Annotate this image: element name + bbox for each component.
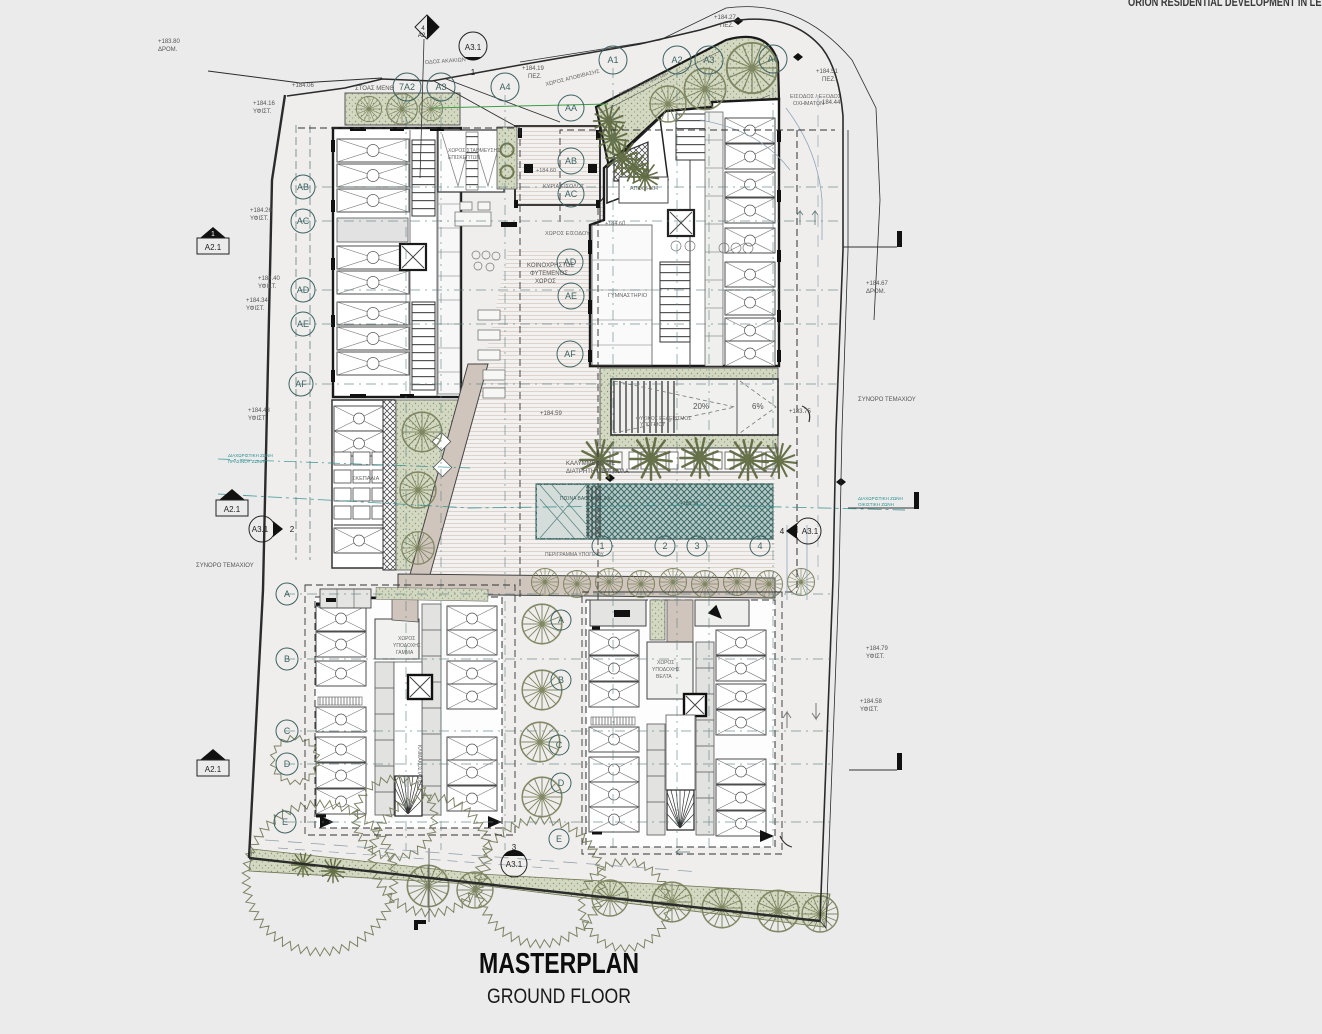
svg-text:ΒΕΛΤΑ: ΒΕΛΤΑ xyxy=(656,674,672,680)
svg-text:ΣΚΕΠΑΛΙΑ: ΣΚΕΠΑΛΙΑ xyxy=(352,476,380,482)
svg-text:A1: A1 xyxy=(607,55,618,65)
svg-text:+184.60: +184.60 xyxy=(536,168,556,174)
svg-text:+183.15: +183.15 xyxy=(680,501,698,507)
svg-text:AF: AF xyxy=(564,349,576,359)
svg-text:+184.79: +184.79 xyxy=(866,646,889,652)
svg-text:3: 3 xyxy=(512,843,517,852)
svg-text:ΧΩΡΟΣ ΕΙΣΟΔΟΥ: ΧΩΡΟΣ ΕΙΣΟΔΟΥ xyxy=(545,231,590,237)
svg-text:+184.60: +184.60 xyxy=(605,221,625,227)
svg-text:3: 3 xyxy=(694,541,699,551)
svg-text:ΥΦΙΣΤ.: ΥΦΙΣΤ. xyxy=(258,284,277,290)
svg-text:AB: AB xyxy=(297,182,309,192)
svg-text:B: B xyxy=(558,675,564,685)
svg-text:20%: 20% xyxy=(693,402,709,411)
svg-text:ΔΙΑΧΩΡΙΣΤΙΚΗ ΖΩΝΗ: ΔΙΑΧΩΡΙΣΤΙΚΗ ΖΩΝΗ xyxy=(228,453,273,458)
svg-text:2: 2 xyxy=(662,541,667,551)
svg-text:ΥΦΙΣΤ.: ΥΦΙΣΤ. xyxy=(250,216,269,222)
svg-text:MASTERPLAN: MASTERPLAN xyxy=(479,948,639,980)
svg-text:4: 4 xyxy=(780,527,785,536)
svg-text:+184.27: +184.27 xyxy=(714,15,737,21)
svg-text:A4: A4 xyxy=(767,54,778,64)
svg-text:+184.43: +184.43 xyxy=(248,408,271,414)
svg-text:ΟΧΗΜΑΤΩΝ: ΟΧΗΜΑΤΩΝ xyxy=(793,101,824,107)
svg-text:ΣΥΝΟΡΟ ΤΕΜΑΧΙΟΥ: ΣΥΝΟΡΟ ΤΕΜΑΧΙΟΥ xyxy=(858,397,916,403)
svg-text:ΔΡΟΜ.: ΔΡΟΜ. xyxy=(866,289,886,295)
svg-text:A3.1: A3.1 xyxy=(465,43,482,52)
svg-text:ΠΕΡΙΓΡΑΜΜΑ ΥΠΟΓΕΙΟΥ: ΠΕΡΙΓΡΑΜΜΑ ΥΠΟΓΕΙΟΥ xyxy=(545,552,604,558)
svg-text:1: 1 xyxy=(471,68,476,77)
svg-text:ΚΟΙΝΟΧΡΗΣΤΟΣ: ΚΟΙΝΟΧΡΗΣΤΟΣ xyxy=(527,263,574,269)
svg-text:ΥΦΙΣΤ.: ΥΦΙΣΤ. xyxy=(860,707,879,713)
svg-text:ΣΥΝΟΡΟ ΤΕΜΑΧΙΟΥ: ΣΥΝΟΡΟ ΤΕΜΑΧΙΟΥ xyxy=(196,563,254,569)
svg-text:A3.1: A3.1 xyxy=(252,525,269,534)
svg-text:+184.19: +184.19 xyxy=(522,66,545,72)
svg-text:ΥΦΙΣΤ.: ΥΦΙΣΤ. xyxy=(866,654,885,660)
svg-text:ΠΙΣΙΝΑ ΒΑΘΟΥΣ 1.40μ: ΠΙΣΙΝΑ ΒΑΘΟΥΣ 1.40μ xyxy=(560,496,612,502)
svg-text:AE: AE xyxy=(565,291,577,301)
svg-text:ΦΥΤΕΜΕΝΟΣ: ΦΥΤΕΜΕΝΟΣ xyxy=(530,271,568,277)
svg-text:A2.1: A2.1 xyxy=(418,33,431,39)
svg-text:A3.1: A3.1 xyxy=(802,527,819,536)
svg-text:ΣΤΟΑΣ ΜΕΝΘ: ΣΤΟΑΣ ΜΕΝΘ xyxy=(355,86,395,92)
svg-text:ΥΠΟΔΟΧΗΣ: ΥΠΟΔΟΧΗΣ xyxy=(393,643,421,649)
svg-text:4: 4 xyxy=(421,26,425,32)
svg-text:A2.1: A2.1 xyxy=(205,243,222,252)
svg-text:ΥΦΙΣΤ.: ΥΦΙΣΤ. xyxy=(246,306,265,312)
svg-text:ΟΔΟΣ ΑΚΑΚΙΩΝ: ΟΔΟΣ ΑΚΑΚΙΩΝ xyxy=(425,57,466,66)
svg-text:E: E xyxy=(556,834,562,844)
svg-text:ΟΙΚΙΣΤΙΚΗ ΖΩΝΗ: ΟΙΚΙΣΤΙΚΗ ΖΩΝΗ xyxy=(858,502,894,507)
svg-text:ΧΩΡΟΣ: ΧΩΡΟΣ xyxy=(657,660,674,666)
svg-text:AA: AA xyxy=(565,103,577,113)
svg-text:+184.26: +184.26 xyxy=(250,208,273,214)
svg-text:+184.59: +184.59 xyxy=(540,411,563,417)
svg-text:A2.1: A2.1 xyxy=(224,505,241,514)
svg-text:C: C xyxy=(556,740,563,750)
svg-text:AC: AC xyxy=(297,216,310,226)
svg-text:AC: AC xyxy=(565,189,578,199)
svg-text:+184.40: +184.40 xyxy=(258,276,281,282)
svg-text:ΔΙΑΧΩΡΙΣΤΙΚΗ ΖΩΝΗ: ΔΙΑΧΩΡΙΣΤΙΚΗ ΖΩΝΗ xyxy=(858,496,903,501)
svg-text:GROUND FLOOR: GROUND FLOOR xyxy=(487,984,631,1008)
svg-text:A3: A3 xyxy=(703,55,714,65)
svg-text:ΠΕΖ.: ΠΕΖ. xyxy=(822,77,836,83)
svg-text:1: 1 xyxy=(599,541,604,551)
svg-text:E: E xyxy=(282,817,288,827)
svg-text:ORION RESIDENTIAL DEVELOPMENT: ORION RESIDENTIAL DEVELOPMENT IN LEMESOS… xyxy=(1128,0,1322,9)
svg-text:+184.67: +184.67 xyxy=(866,281,889,287)
svg-text:C: C xyxy=(284,726,291,736)
svg-text:ΓΑΜΜΑ: ΓΑΜΜΑ xyxy=(396,650,414,656)
svg-text:ΧΩΡΟΣ: ΧΩΡΟΣ xyxy=(398,636,415,642)
svg-text:ΥΠΟΓΕΙΟΥ: ΥΠΟΓΕΙΟΥ xyxy=(640,422,666,428)
svg-text:+184.58: +184.58 xyxy=(860,699,883,705)
svg-text:+184.51: +184.51 xyxy=(816,69,839,75)
svg-text:ΠΕΖ.: ΠΕΖ. xyxy=(528,74,542,80)
svg-text:184.44: 184.44 xyxy=(822,100,841,106)
svg-text:+184.16: +184.16 xyxy=(253,101,276,107)
svg-text:A2: A2 xyxy=(671,55,682,65)
svg-text:ΠΕΖ.: ΠΕΖ. xyxy=(720,23,734,29)
svg-text:AF: AF xyxy=(295,379,307,389)
svg-text:7A2: 7A2 xyxy=(399,82,415,92)
svg-text:A3: A3 xyxy=(435,82,446,92)
svg-text:+184.34: +184.34 xyxy=(246,298,269,304)
svg-text:AD: AD xyxy=(297,285,310,295)
svg-text:ΧΩΡΟΣ: ΧΩΡΟΣ xyxy=(535,279,556,285)
svg-text:+183.80: +183.80 xyxy=(158,39,181,45)
svg-text:AB: AB xyxy=(565,156,577,166)
svg-text:ΔΙΑΤΡΗΤΗ ΠΕΡΓΚΟΛΑ: ΔΙΑΤΡΗΤΗ ΠΕΡΓΚΟΛΑ xyxy=(566,469,629,475)
svg-text:D: D xyxy=(284,759,291,769)
svg-text:A: A xyxy=(284,589,290,599)
svg-text:ΚΑΛΥΜΜΕΝΟ ΜΕ: ΚΑΛΥΜΜΕΝΟ ΜΕ xyxy=(566,461,615,467)
svg-text:+184.06: +184.06 xyxy=(292,83,315,89)
svg-text:A2.1: A2.1 xyxy=(205,765,222,774)
svg-text:A4: A4 xyxy=(499,82,510,92)
svg-text:2: 2 xyxy=(290,525,295,534)
svg-text:B: B xyxy=(284,654,290,664)
svg-text:4: 4 xyxy=(757,541,762,551)
svg-text:ΠΡΑΣΙΝΟΥ ΖΩΝΗ: ΠΡΑΣΙΝΟΥ ΖΩΝΗ xyxy=(228,459,264,464)
svg-text:ΥΦΙΣΤ.: ΥΦΙΣΤ. xyxy=(248,416,267,422)
svg-text:ΕΠΙΣΚΕΠΤΩΝ: ΕΠΙΣΚΕΠΤΩΝ xyxy=(448,155,480,161)
svg-text:D: D xyxy=(558,778,565,788)
svg-text:ΚΛΙΜΑΚΟΣΤΑΣΙΟ: ΚΛΙΜΑΚΟΣΤΑΣΙΟ xyxy=(416,745,422,785)
svg-text:6%: 6% xyxy=(752,402,764,411)
svg-text:AE: AE xyxy=(297,319,309,329)
svg-text:+183.75: +183.75 xyxy=(789,409,812,415)
svg-text:ΥΦΙΣΤ.: ΥΦΙΣΤ. xyxy=(253,109,272,115)
svg-text:A3.1: A3.1 xyxy=(506,860,523,869)
svg-text:ΔΡΟΜ.: ΔΡΟΜ. xyxy=(158,47,178,53)
svg-text:ΥΠΟΔΟΧΗΣ: ΥΠΟΔΟΧΗΣ xyxy=(652,667,680,673)
svg-text:ΧΩΡΟΣ ΣΤΑΘΜΕΥΣΗΣ: ΧΩΡΟΣ ΣΤΑΘΜΕΥΣΗΣ xyxy=(448,148,500,154)
svg-text:ΓΥΜΝΑΣΤΗΡΙΟ: ΓΥΜΝΑΣΤΗΡΙΟ xyxy=(608,293,648,299)
svg-text:A: A xyxy=(558,615,564,625)
svg-text:1: 1 xyxy=(211,231,215,238)
